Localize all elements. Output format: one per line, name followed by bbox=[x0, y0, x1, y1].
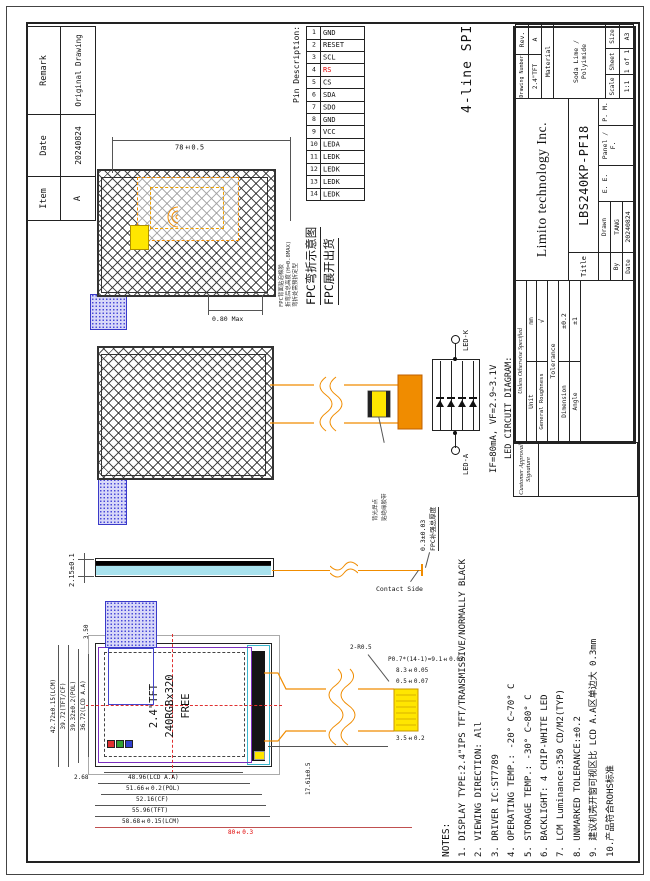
pin-col: 9VCC bbox=[307, 125, 364, 137]
pin-number: 2 bbox=[307, 40, 321, 51]
pin-name: VCC bbox=[321, 126, 365, 137]
led-diode-bar bbox=[458, 398, 466, 400]
backlight-tab-flat-view bbox=[98, 476, 127, 525]
dim-line bbox=[95, 816, 270, 817]
pin-number: 9 bbox=[307, 126, 321, 137]
date-label: Date bbox=[622, 252, 634, 281]
pin-number: 12 bbox=[307, 164, 321, 175]
led-diode-bar bbox=[469, 398, 477, 400]
dim-length-cf: 52.16(CF) bbox=[136, 797, 169, 803]
pin-number: 4 bbox=[307, 64, 321, 75]
fold-caption-1: FPC弯折示意图 bbox=[303, 227, 321, 305]
pin-col: 12LEDK bbox=[307, 163, 364, 175]
led-branch bbox=[473, 361, 474, 431]
dim-tab: 3.50 bbox=[84, 625, 90, 639]
pin-name: GND bbox=[321, 27, 365, 38]
note-item: 1. DISPLAY TYPE:2.4"IPS TFT/TRANSMISSIVE… bbox=[455, 545, 471, 857]
side-fpc-break-icon bbox=[330, 557, 358, 581]
dim-width-lcm: 42.72±0.15(LCM) bbox=[51, 645, 57, 767]
pin-col: 13LEDK bbox=[307, 175, 364, 187]
dim-line bbox=[208, 310, 262, 311]
dim-fpc-contact-len: 3.5±0.2 bbox=[396, 736, 425, 742]
customer-approval-line2: Signature bbox=[525, 443, 532, 496]
dim-length-aa: 48.96(LCD A.A) bbox=[128, 775, 179, 781]
pin-number: 1 bbox=[307, 27, 321, 38]
led-branch bbox=[462, 361, 463, 431]
rev-label: Rev. bbox=[515, 24, 529, 55]
rev-value: A bbox=[528, 24, 542, 55]
led-diode-bar bbox=[436, 398, 444, 400]
dim-length-lcm: 58.68±0.15(LCM) bbox=[122, 819, 180, 825]
fold-note-line3: 弯折处需预折定型 bbox=[294, 263, 300, 307]
dim-width-pol: 39.32±0.2(POL) bbox=[71, 649, 77, 763]
dim-fold-height: 0.80 Max bbox=[212, 316, 243, 323]
led-cathode-dot bbox=[453, 357, 457, 361]
title-block: Unless Otherwise Specified Unit mm Gener… bbox=[513, 26, 636, 444]
fold-note-line2: 折弯后总高度(H=0.8MAX) bbox=[287, 241, 293, 307]
size-label: Size bbox=[605, 24, 620, 49]
sheet-label: Sheet bbox=[605, 48, 620, 75]
dim-line bbox=[98, 783, 250, 784]
side-fpc-end bbox=[421, 564, 423, 576]
pin-col: 14LEDK bbox=[307, 188, 364, 200]
dim-ext-line bbox=[262, 295, 263, 315]
pin-name: SDO bbox=[321, 102, 365, 113]
note-item: 6. BACKLIGHT: 4 CHIP-WHITE LED bbox=[537, 545, 553, 857]
dim-line bbox=[78, 649, 79, 763]
backlight-fpc-outline bbox=[108, 648, 154, 705]
dim-thickness: 2.15±0.1 bbox=[68, 553, 76, 587]
screenshot-root: Item Date Remark A 20240824 Original Dra… bbox=[0, 0, 650, 881]
dim-line bbox=[112, 140, 290, 141]
led-branch bbox=[451, 361, 452, 431]
pm-label: P. M. bbox=[598, 98, 634, 126]
dim-width-aa: 36.72(LCD A.A) bbox=[81, 654, 87, 757]
fpc-fold-coil-icon bbox=[152, 201, 184, 233]
led-diode-icon bbox=[447, 400, 455, 407]
dim-line bbox=[268, 746, 388, 747]
led-branch bbox=[440, 361, 441, 431]
dim-length-pol: 51.66±0.2(POL) bbox=[126, 786, 180, 792]
revision-value-date: 20240824 bbox=[60, 114, 96, 177]
dim-unfolded-length: 78±0.5 bbox=[175, 144, 204, 152]
notes-block: NOTES: 1. DISPLAY TYPE:2.4"IPS TFT/TRANS… bbox=[438, 545, 619, 857]
led-diode-icon bbox=[458, 400, 466, 407]
dim-overall-length: 80±0.3 bbox=[228, 830, 253, 836]
fpc-flat-tail bbox=[270, 369, 428, 433]
side-view-glass bbox=[96, 565, 271, 575]
stiffener-thickness: 0.3±0.03 bbox=[420, 520, 427, 551]
pin-name: LEDK bbox=[321, 164, 365, 175]
pin-name: RESET bbox=[321, 40, 365, 51]
pin-name: LEDK bbox=[321, 176, 365, 187]
note-item: 9. 建议机壳开窗可视区比 LCD A.A区单边大 0.3mm bbox=[586, 545, 602, 857]
panel-label: Panel / F. bbox=[598, 125, 634, 166]
size-value: A3 bbox=[619, 24, 634, 49]
drawing-sheet: Item Date Remark A 20240824 Original Dra… bbox=[0, 0, 650, 881]
revision-header-date: Date bbox=[26, 114, 61, 177]
led-anode-terminal bbox=[451, 446, 460, 455]
led-diode-bar bbox=[447, 398, 455, 400]
revision-header-remark: Remark bbox=[26, 26, 61, 115]
dim-width-tftcf: 39.72(TFT/CF) bbox=[61, 645, 67, 767]
pin-table-title: Pin Description: bbox=[292, 26, 301, 103]
pin-number: 6 bbox=[307, 89, 321, 100]
pin-name: LEDK bbox=[321, 189, 365, 200]
pin-number: 5 bbox=[307, 77, 321, 88]
pin-col: 11LEDK bbox=[307, 150, 364, 162]
spec-empty-cell bbox=[580, 280, 634, 442]
pin-name: LEDK bbox=[321, 151, 365, 162]
backlight-tab-front-view bbox=[105, 601, 157, 648]
dim-line bbox=[101, 794, 262, 795]
dim-length-tft: 55.96(TFT) bbox=[132, 808, 168, 814]
signature-divider bbox=[538, 443, 539, 496]
pin-number: 13 bbox=[307, 176, 321, 187]
dim-ext-line bbox=[290, 137, 291, 221]
material-value: Soda Lime / Polyimide bbox=[553, 24, 606, 99]
pin-col: 10LEDA bbox=[307, 138, 364, 150]
dim-line bbox=[95, 805, 266, 806]
note-item: 3. DRIVER IC:ST7789 bbox=[488, 545, 504, 857]
dim-fpc-corner: 2-R0.5 bbox=[350, 645, 372, 651]
drawing-number-label: Drawing Number bbox=[515, 54, 529, 99]
note-item: 7. LCM Luminance:350 CD/M2(TYP) bbox=[553, 545, 569, 857]
flat-callout-line1: 背光焊点 bbox=[374, 499, 380, 521]
pin-name: CS bbox=[321, 77, 365, 88]
led-cathode-terminal bbox=[451, 335, 460, 344]
dim-line bbox=[88, 654, 89, 757]
dim-fpc-pad: 0.5±0.07 bbox=[396, 679, 428, 685]
pin-number: 14 bbox=[307, 189, 321, 200]
dim-line bbox=[58, 645, 59, 767]
note-item: 2. VIEWING DIRECTION: All bbox=[471, 545, 487, 857]
contact-side-label: Contact Side bbox=[376, 586, 423, 593]
led-spec: IF=80mA, VF=2.9~3.1V bbox=[489, 365, 499, 473]
pin-col: 4RS bbox=[307, 63, 364, 75]
dim-line bbox=[104, 772, 243, 773]
revision-value-item: A bbox=[60, 176, 96, 221]
side-fpc-line2 bbox=[358, 570, 422, 571]
pin-number: 8 bbox=[307, 114, 321, 125]
pin-col: 3SCL bbox=[307, 51, 364, 63]
ee-label: E. E. bbox=[598, 165, 634, 202]
pin-number: 7 bbox=[307, 102, 321, 113]
side-view-pol bbox=[96, 561, 271, 565]
customer-approval-box: Customer Approval Signature bbox=[513, 442, 638, 497]
pin-name: LEDA bbox=[321, 139, 365, 150]
dim-line bbox=[68, 645, 69, 767]
pin-number: 11 bbox=[307, 151, 321, 162]
pin-col: 8GND bbox=[307, 113, 364, 125]
dim-fpc-contact-width: 8.3±0.05 bbox=[396, 668, 428, 674]
pixel-rgb-icon bbox=[107, 740, 133, 748]
pin-name: SCL bbox=[321, 52, 365, 63]
screen-line-free: FREE bbox=[178, 659, 194, 753]
dim-ext-line bbox=[208, 295, 209, 315]
backlight-tab-folded-view bbox=[90, 294, 127, 330]
notes-heading: NOTES: bbox=[438, 545, 455, 857]
pin-number: 10 bbox=[307, 139, 321, 150]
revision-table: Item Date Remark A 20240824 Original Dra… bbox=[26, 26, 96, 221]
pin-col: 1GND bbox=[307, 27, 364, 38]
part-number: LBS240KP-PF18 bbox=[568, 98, 599, 253]
dim-ext-line bbox=[78, 559, 94, 560]
pin-col: 5CS bbox=[307, 76, 364, 88]
flat-callout-line2: 贴绝缘胶带 bbox=[383, 493, 389, 521]
pin-table: 14LEDK 13LEDK 12LEDK 11LEDK 10LEDA 9VCC … bbox=[306, 26, 365, 201]
pin-col: 7SDO bbox=[307, 101, 364, 113]
dim-fpc-length: 17.61±0.5 bbox=[306, 762, 312, 795]
note-item: 4. OPERATING TEMP.: -20° C~70° C bbox=[504, 545, 520, 857]
drawing-number-value: 2.4"TFT bbox=[528, 54, 542, 99]
dim-ext-line bbox=[112, 137, 113, 173]
led-diode-icon bbox=[469, 400, 477, 407]
revision-value-remark: Original Drawing bbox=[60, 26, 96, 115]
side-fpc-line bbox=[272, 570, 330, 571]
note-item: 5. STORAGE TEMP.: -30° C~80° C bbox=[521, 545, 537, 857]
interface-label: 4-line SPI bbox=[460, 25, 475, 113]
scale-value: 1:1 bbox=[619, 74, 634, 99]
company-name: Limito technology Inc. bbox=[515, 98, 569, 281]
screen-line-resolution: 240RGBx320 bbox=[162, 659, 178, 753]
title-label: Title bbox=[568, 252, 599, 281]
pin-name-rs: RS bbox=[321, 64, 365, 75]
drawn-date: 20240824 bbox=[622, 201, 634, 253]
sheet-value: 1 of 1 bbox=[619, 48, 634, 75]
note-item: 8. UNMARKED TOLERANCE:±0.2 bbox=[570, 545, 586, 857]
pin-name: SDA bbox=[321, 89, 365, 100]
scale-label: Scale bbox=[605, 74, 620, 99]
fpc-flat-inner-frame bbox=[101, 354, 266, 476]
led-diode-icon bbox=[436, 400, 444, 407]
pin-number: 3 bbox=[307, 52, 321, 63]
fold-note-line1: FPC背面贴泡棉胶 bbox=[280, 264, 286, 307]
note-item: 10.产品符合ROHS标准 bbox=[603, 545, 619, 857]
led-anode-label: LED-A bbox=[462, 454, 470, 475]
dim-edge: 2.68 bbox=[74, 775, 88, 781]
pin-col: 2RESET bbox=[307, 39, 364, 51]
dim-line-overall bbox=[95, 827, 412, 828]
pin-col: 6SDA bbox=[307, 88, 364, 100]
pin-name: GND bbox=[321, 114, 365, 125]
fpc-fold-component bbox=[130, 225, 149, 250]
led-anode-dot bbox=[453, 431, 457, 435]
fold-caption-2: FPC展开出货 bbox=[321, 238, 339, 305]
revision-header-item: Item bbox=[26, 176, 61, 221]
dim-line bbox=[84, 553, 85, 583]
dim-ext-line bbox=[78, 576, 94, 577]
customer-approval-line1: Customer Approval bbox=[518, 443, 525, 496]
led-cathode-label: LED-K bbox=[462, 330, 470, 351]
